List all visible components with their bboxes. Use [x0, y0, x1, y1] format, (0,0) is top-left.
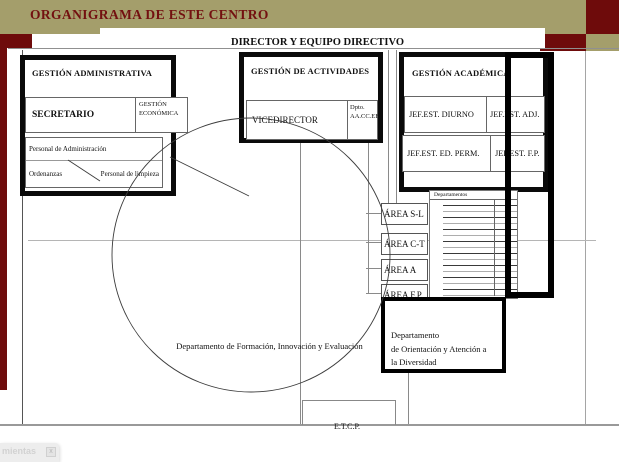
area-sl-box: ÁREA S-L [381, 203, 428, 225]
connector-stub [366, 268, 382, 269]
frame-right-line [585, 51, 586, 425]
personal-administracion-label: Personal de Administración [26, 138, 162, 161]
ordenanzas-row: Ordenanzas Personal de limpieza [26, 161, 162, 187]
vicedirector-cell: VICEDIRECTOR Dpto. AA.CC.EE. [246, 100, 378, 140]
departamentos-header: Departamentos [430, 191, 517, 200]
etcp-label: E.T.C.P. [312, 422, 382, 431]
departamentos-column-line [494, 200, 495, 296]
director-label: DIRECTOR Y EQUIPO DIRECTIVO [205, 37, 430, 48]
corner-square-red-top [586, 0, 619, 35]
jef-est-ed-perm: JEF.EST. ED. PERM. [403, 136, 490, 171]
gestion-actividades-title: GESTIÓN DE ACTIVIDADES [244, 57, 378, 76]
diagonal-connector-1 [170, 157, 249, 196]
frame-top-line [8, 48, 619, 49]
orientacion-line1: Departamento [391, 329, 502, 343]
gestion-economica-label: GESTIÓN ECONÓMICA [135, 98, 187, 132]
ordenanzas-label: Ordenanzas [29, 170, 62, 178]
left-accent-bar [0, 34, 7, 390]
dep-formacion-label: Departamento de Formación, Innovación y … [162, 341, 377, 351]
connector-areas-spine [368, 141, 369, 293]
orientacion-line3: la Diversidad [391, 356, 502, 370]
gestion-administrativa-title: GESTIÓN ADMINISTRATIVA [25, 60, 171, 78]
floating-toolbar-fragment[interactable]: mientas x [0, 443, 59, 462]
connector-narrow-strip-right [396, 50, 397, 203]
secretario-cell: SECRETARIO GESTIÓN ECONÓMICA [25, 97, 188, 133]
connector-stub [366, 293, 382, 294]
slide-screen: ORGANIGRAMA DE ESTE CENTRO DIRECTOR Y EQ… [0, 0, 619, 462]
box-orientacion: Departamento de Orientación y Atención a… [381, 297, 506, 373]
secretario-label: SECRETARIO [26, 98, 135, 132]
slide-title: ORGANIGRAMA DE ESTE CENTRO [30, 7, 269, 23]
area-ct-box: ÁREA C-T [381, 233, 428, 255]
limpieza-label: Personal de limpieza [101, 170, 159, 178]
dpto-aaccee-label: Dpto. AA.CC.EE. [347, 101, 377, 139]
connector-orientacion-vertical [408, 373, 409, 424]
connector-stub [366, 242, 382, 243]
connector-center-vertical [300, 143, 301, 424]
orientacion-line2: de Orientación y Atención a [391, 343, 502, 357]
personal-cell: Personal de Administración Ordenanzas Pe… [25, 137, 163, 188]
toolbar-close-icon[interactable]: x [46, 447, 56, 457]
area-a-box: ÁREA A [381, 259, 428, 281]
jef-est-diurno: JEF.EST. DIURNO [405, 97, 486, 132]
connector-stub [366, 213, 382, 214]
connector-narrow-strip-left [388, 50, 389, 203]
vicedirector-label: VICEDIRECTOR [247, 101, 347, 139]
toolbar-title: mientas [2, 446, 36, 456]
box-tall-right [505, 52, 554, 298]
